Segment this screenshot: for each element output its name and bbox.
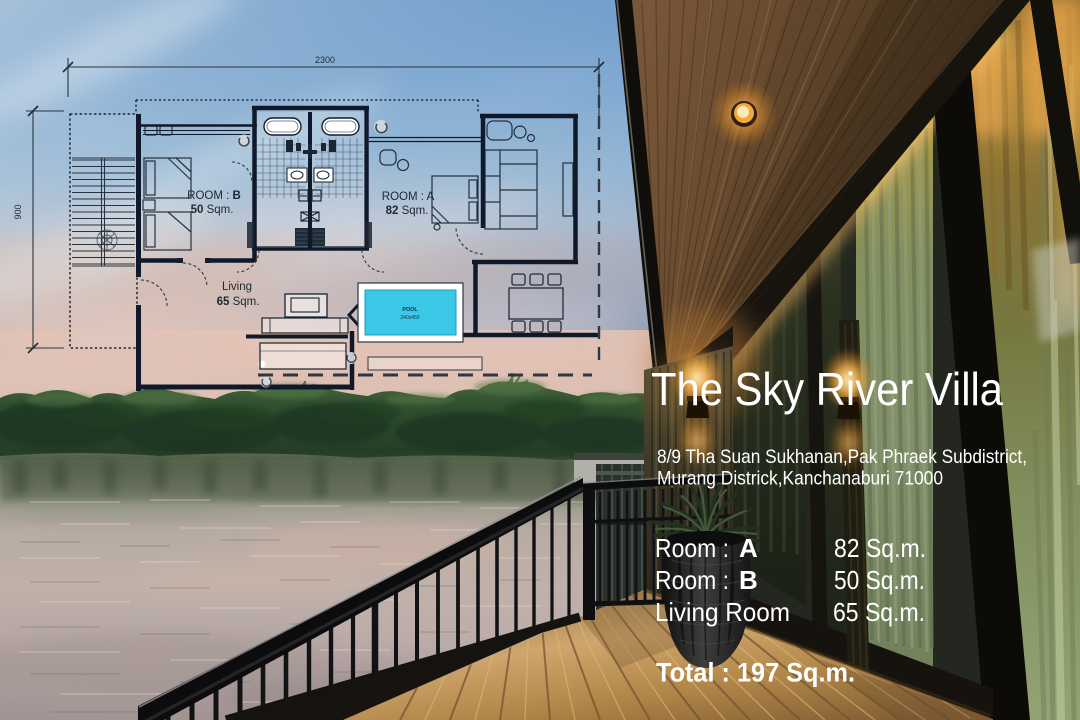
svg-text:82 Sqm.: 82 Sqm. (386, 205, 429, 217)
svg-text:65 Sqm.: 65 Sqm. (217, 296, 260, 308)
svg-text:8/9 Tha Suan Sukhanan,Pak Phra: 8/9 Tha Suan Sukhanan,Pak Phraek Subdist… (657, 446, 1027, 468)
svg-text:2300: 2300 (315, 55, 335, 65)
svg-text:240x450: 240x450 (400, 315, 419, 321)
svg-text:65 Sq.m.: 65 Sq.m. (833, 597, 925, 627)
svg-text:The Sky River Villa: The Sky River Villa (651, 363, 1003, 415)
svg-text:Room :: Room : (655, 533, 729, 563)
svg-text:900: 900 (13, 204, 23, 219)
svg-text:ROOM : B: ROOM : B (187, 190, 241, 202)
svg-text:50 Sq.m.: 50 Sq.m. (834, 565, 925, 595)
svg-text:82 Sq.m.: 82 Sq.m. (834, 533, 926, 563)
svg-text:Room :: Room : (655, 565, 729, 595)
svg-text:Living: Living (222, 281, 252, 293)
svg-text:Total : 197 Sq.m.: Total : 197 Sq.m. (656, 658, 855, 688)
svg-text:POOL: POOL (402, 307, 418, 313)
svg-text:A: A (739, 533, 758, 563)
svg-text:50 Sqm.: 50 Sqm. (191, 204, 234, 216)
svg-text:ROOM : A: ROOM : A (382, 191, 435, 203)
svg-text:B: B (739, 565, 758, 595)
svg-text:Murang Districk,Kanchanaburi 7: Murang Districk,Kanchanaburi 71000 (657, 468, 943, 490)
svg-text:Living Room: Living Room (655, 597, 790, 627)
